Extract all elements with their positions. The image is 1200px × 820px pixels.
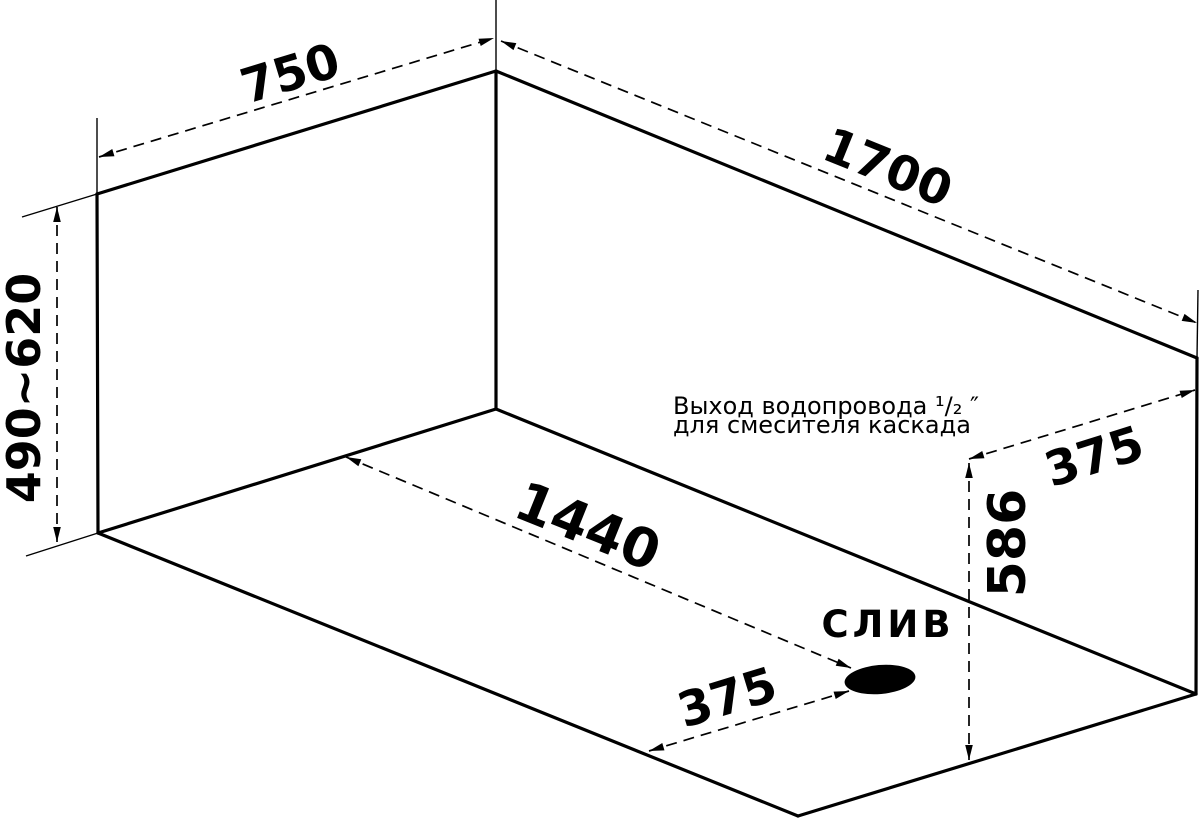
dim-label-375-bottom: 375 [671, 657, 783, 740]
dim-label-750: 750 [234, 33, 346, 116]
dim-label-375-right: 375 [1038, 415, 1150, 499]
left-wall-bottom-edge [98, 409, 496, 533]
dim-label-1440: 1440 [506, 469, 669, 584]
drain-hole [843, 662, 916, 697]
dim-label-490-620: 490~620 [0, 273, 51, 504]
extension-line-top-left-slant [22, 194, 97, 217]
dim-label-586: 586 [978, 489, 1038, 598]
dim-label-1700: 1700 [815, 117, 960, 219]
floor-front-left-edge [98, 533, 798, 816]
bathtub-installation-diagram: 750 1700 490~620 1440 375 375 586 СЛИВ В… [0, 0, 1200, 820]
extension-line-right-vertical [1197, 290, 1198, 358]
left-wall-left-edge [97, 194, 98, 533]
floor-front-right-edge [798, 694, 1196, 816]
drain-label: СЛИВ [821, 603, 954, 646]
right-wall-right-edge [1196, 358, 1197, 694]
extension-line-bottom-left-slant [26, 533, 98, 556]
right-wall-top-edge [496, 71, 1197, 358]
outlet-note-line2: для смесителя каскада [673, 411, 971, 439]
diagram-canvas: 750 1700 490~620 1440 375 375 586 СЛИВ В… [0, 0, 1200, 820]
